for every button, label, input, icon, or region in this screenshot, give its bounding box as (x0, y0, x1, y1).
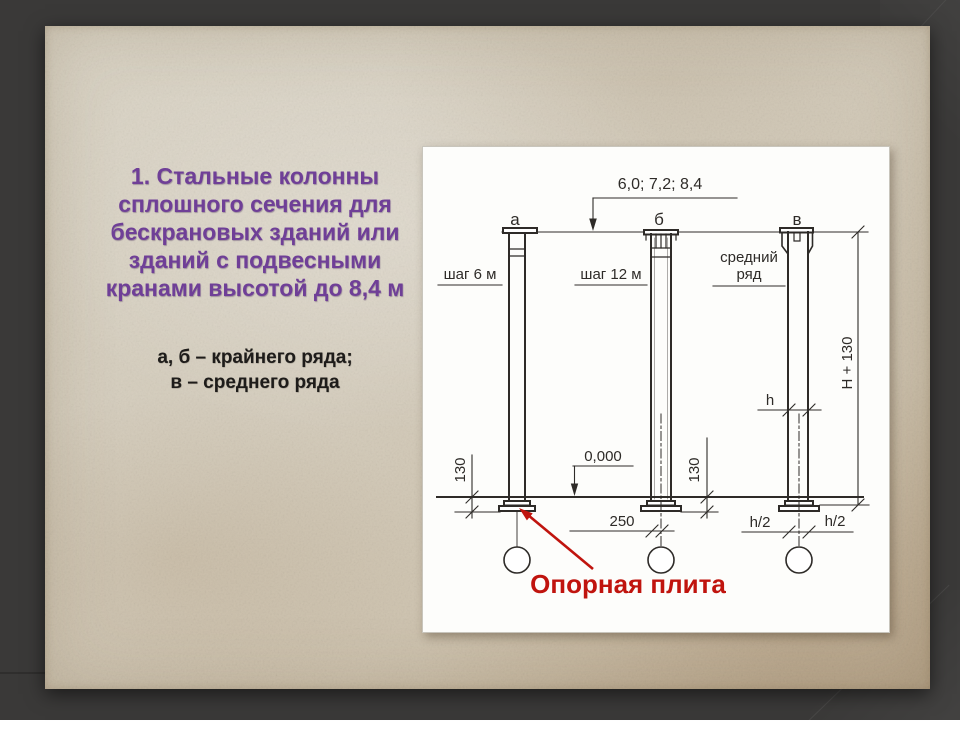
columns-diagram: 6,0; 7,2; 8,4 а б в шаг 6 м шаг 12 м сре… (422, 146, 890, 633)
slide: 1. Стальные колонны сплошного сечения дл… (45, 26, 930, 689)
column-a (499, 228, 537, 511)
span-dimension-label: 6,0; 7,2; 8,4 (618, 176, 703, 193)
title-line-3: бескрановых зданий или (83, 218, 427, 246)
callout-arrow-line (528, 515, 593, 569)
row-label-line1: средний (720, 249, 778, 266)
level-mark-leader (571, 466, 633, 496)
title-line-4: зданий с подвесными (83, 246, 427, 274)
column-a-label: а (510, 210, 520, 229)
step-left-label: шаг 6 м (444, 266, 497, 283)
embed-left-label: 130 (452, 457, 469, 482)
title-line-5: кранами высотой до 8,4 м (83, 274, 427, 302)
half-depth-left-label: h/2 (750, 514, 771, 531)
axis-bubble-v (786, 547, 812, 573)
embed-middle-label: 130 (686, 457, 703, 482)
offset-dimension-label: 250 (609, 513, 634, 530)
background-seam-bottom-left (0, 672, 46, 674)
subtitle-line-2: в – среднего ряда (83, 370, 427, 395)
half-depth-right-label: h/2 (825, 513, 846, 530)
slide-subtitle: а, б – крайнего ряда; в – среднего ряда (83, 345, 427, 395)
diagram-linework (437, 198, 869, 573)
figure-panel: 6,0; 7,2; 8,4 а б в шаг 6 м шаг 12 м сре… (422, 146, 890, 633)
slide-title: 1. Стальные колонны сплошного сечения дл… (83, 162, 427, 302)
column-b-label: б (654, 210, 664, 229)
title-line-2: сплошного сечения для (83, 190, 427, 218)
presentation-background: 1. Стальные колонны сплошного сечения дл… (0, 0, 960, 720)
height-dimension-label: Н + 130 (839, 337, 856, 390)
callout-label: Опорная плита (530, 569, 726, 599)
subtitle-line-1: а, б – крайнего ряда; (83, 345, 427, 370)
column-v-label: в (792, 210, 801, 229)
row-label-line2: ряд (736, 266, 761, 283)
axis-bubble-a (504, 547, 530, 573)
step-middle-label: шаг 12 м (580, 266, 641, 283)
title-line-1: 1. Стальные колонны (83, 162, 427, 190)
depth-label: h (766, 392, 774, 409)
level-mark-label: 0,000 (584, 448, 622, 465)
